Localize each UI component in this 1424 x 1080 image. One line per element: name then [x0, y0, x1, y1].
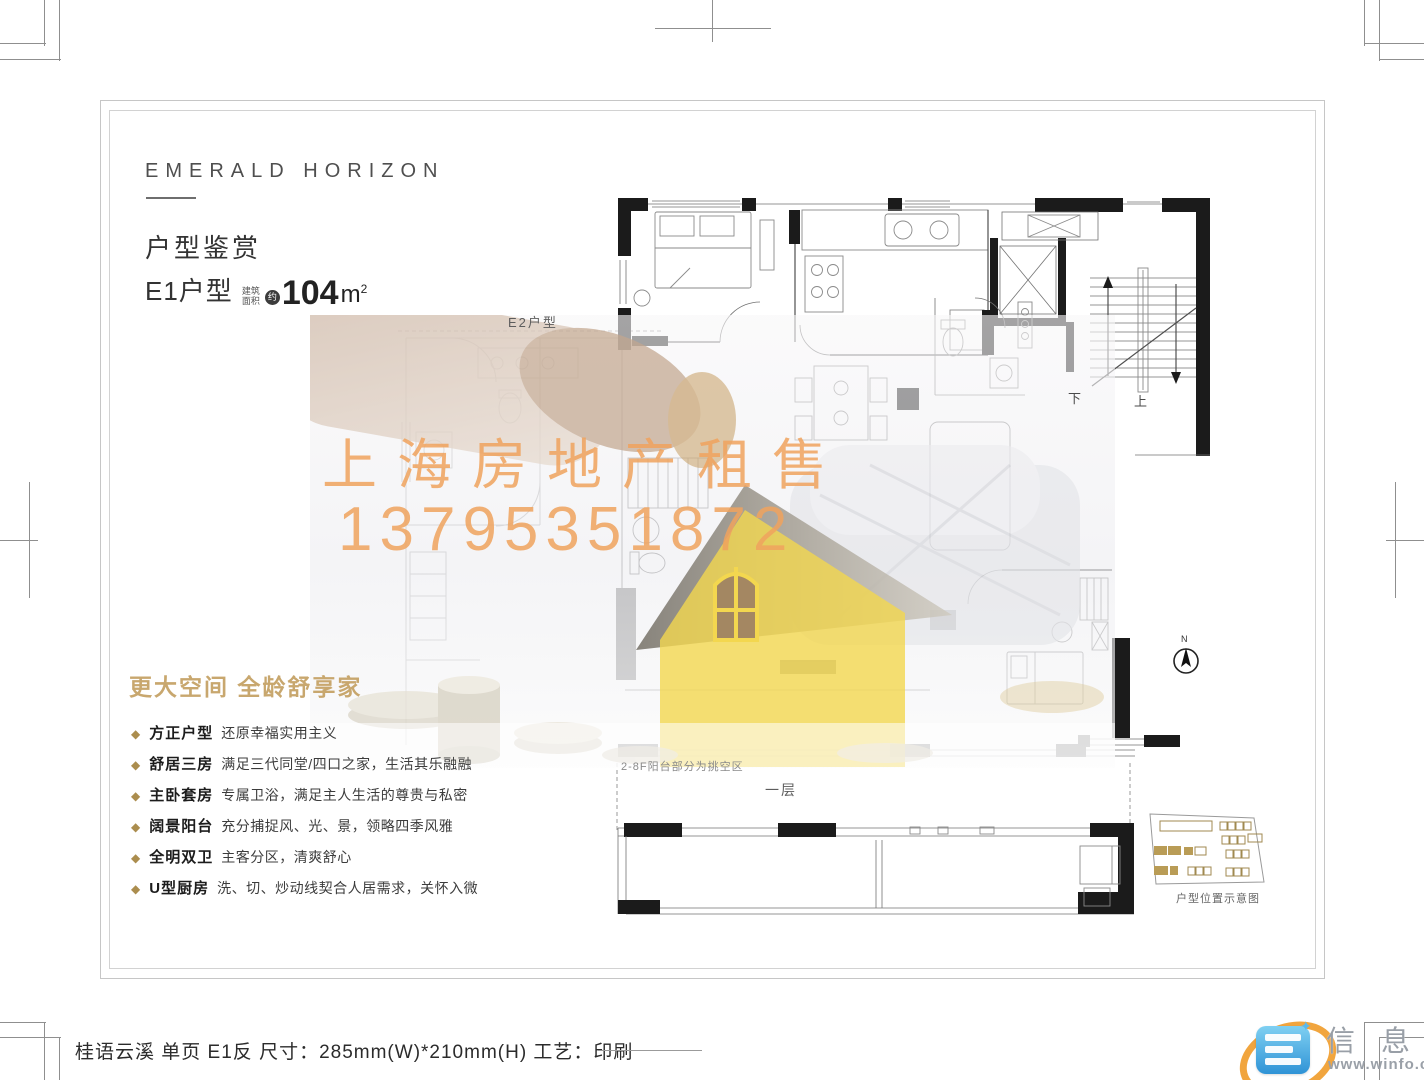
- crop-mark: [59, 0, 60, 61]
- watermark-phone: 13795351872: [338, 499, 847, 561]
- unit-name: E1户型: [145, 271, 233, 308]
- feature-term: 主卧套房: [149, 784, 213, 805]
- site-map-caption: 户型位置示意图: [1176, 890, 1260, 906]
- crop-mark: [0, 1037, 61, 1038]
- feature-desc: 满足三代同堂/四口之家，生活其乐融融: [221, 754, 472, 774]
- feature-desc: 还原幸福实用主义: [221, 723, 337, 743]
- unit-area-line: E1户型 建筑 面积 约 104 m2: [145, 271, 367, 308]
- infoport-logo: ✦ 信 息 港 www.winfo.cc: [1238, 1016, 1424, 1080]
- feature-desc: 主客分区，清爽舒心: [221, 847, 352, 867]
- area-unit: m2: [341, 276, 368, 308]
- watermark-text: 上海房地产租售: [322, 438, 847, 493]
- area-label-top: 建筑: [242, 286, 260, 296]
- crop-mark: [44, 0, 45, 46]
- crop-mark: [712, 0, 713, 42]
- print-spec-caption: 桂语云溪 单页 E1反 尺寸：285mm(W)*210mm(H) 工艺：印刷: [75, 1037, 633, 1064]
- feature-item: ◆U型厨房洗、切、炒动线契合人居需求，关怀入微: [131, 877, 478, 908]
- crop-mark: [1379, 0, 1380, 61]
- crop-mark: [1379, 59, 1424, 60]
- logo-url: www.winfo.cc: [1328, 1056, 1424, 1073]
- crop-mark: [1386, 540, 1424, 541]
- feature-term: 阔景阳台: [149, 815, 213, 836]
- feature-desc: 专属卫浴，满足主人生活的尊贵与私密: [221, 785, 468, 805]
- feature-item: ◆舒居三房满足三代同堂/四口之家，生活其乐融融: [131, 753, 478, 784]
- crop-mark: [44, 1022, 45, 1080]
- feature-term: U型厨房: [149, 877, 209, 898]
- crop-mark: [655, 28, 771, 29]
- agent-watermark: 上海房地产租售 13795351872: [322, 438, 847, 561]
- void-note-label: 2-8F阳台部分为挑空区: [621, 758, 744, 774]
- feature-item: ◆方正户型还原幸福实用主义: [131, 722, 478, 753]
- area-label-bottom: 面积: [242, 296, 260, 306]
- crop-mark: [0, 1022, 46, 1023]
- e2-unit-label: E2户型: [508, 312, 558, 331]
- brand-divider: [146, 197, 196, 199]
- logo-star-icon: ✦: [1300, 1018, 1312, 1035]
- area-label: 建筑 面积: [242, 286, 260, 306]
- flyer-page: EMERALD HORIZON 户型鉴赏 E1户型 建筑 面积 约 104 m2…: [0, 0, 1424, 1080]
- crop-mark: [0, 43, 46, 44]
- first-floor-balcony-plan: [618, 823, 1134, 914]
- area-unit-m: m: [341, 281, 361, 308]
- stairs-up-label: 上: [1134, 391, 1147, 410]
- features-heading: 更大空间 全龄舒享家: [129, 668, 362, 702]
- crop-mark: [0, 540, 38, 541]
- diamond-bullet-icon: ◆: [131, 758, 140, 772]
- feature-item: ◆全明双卫主客分区，清爽舒心: [131, 846, 478, 877]
- site-map: [1140, 800, 1280, 896]
- section-title: 户型鉴赏: [145, 228, 261, 265]
- crop-mark: [1364, 0, 1365, 46]
- crop-mark: [1364, 43, 1424, 44]
- stairs-down-label: 下: [1068, 388, 1081, 407]
- feature-desc: 充分捕捉风、光、景，领略四季风雅: [221, 816, 453, 836]
- feature-term: 全明双卫: [149, 846, 213, 867]
- diamond-bullet-icon: ◆: [131, 727, 140, 741]
- logo-name: 信 息 港: [1326, 1018, 1424, 1060]
- feature-term: 方正户型: [149, 722, 213, 743]
- feature-item: ◆主卧套房专属卫浴，满足主人生活的尊贵与私密: [131, 784, 478, 815]
- footer-rule: [598, 1050, 702, 1051]
- approx-badge: 约: [265, 290, 280, 305]
- site-map-highlighted-buildings: [1154, 846, 1193, 875]
- utility-box: [1002, 212, 1098, 240]
- diamond-bullet-icon: ◆: [131, 789, 140, 803]
- north-label: N: [1181, 634, 1188, 644]
- feature-desc: 洗、切、炒动线契合人居需求，关怀入微: [217, 878, 478, 898]
- north-arrow-icon: [1174, 648, 1198, 673]
- feature-item: ◆阔景阳台充分捕捉风、光、景，领略四季风雅: [131, 815, 478, 846]
- first-floor-label: 一层: [765, 780, 797, 800]
- diamond-bullet-icon: ◆: [131, 851, 140, 865]
- feature-term: 舒居三房: [149, 753, 213, 774]
- area-value: 104: [282, 278, 339, 308]
- crop-mark: [0, 59, 61, 60]
- diamond-bullet-icon: ◆: [131, 882, 140, 896]
- area-unit-sup: 2: [361, 282, 368, 296]
- features-list: ◆方正户型还原幸福实用主义 ◆舒居三房满足三代同堂/四口之家，生活其乐融融 ◆主…: [131, 722, 478, 908]
- bedroom-main: [634, 212, 774, 306]
- crop-mark: [59, 1037, 60, 1080]
- diamond-bullet-icon: ◆: [131, 820, 140, 834]
- brand-title: EMERALD HORIZON: [145, 160, 444, 183]
